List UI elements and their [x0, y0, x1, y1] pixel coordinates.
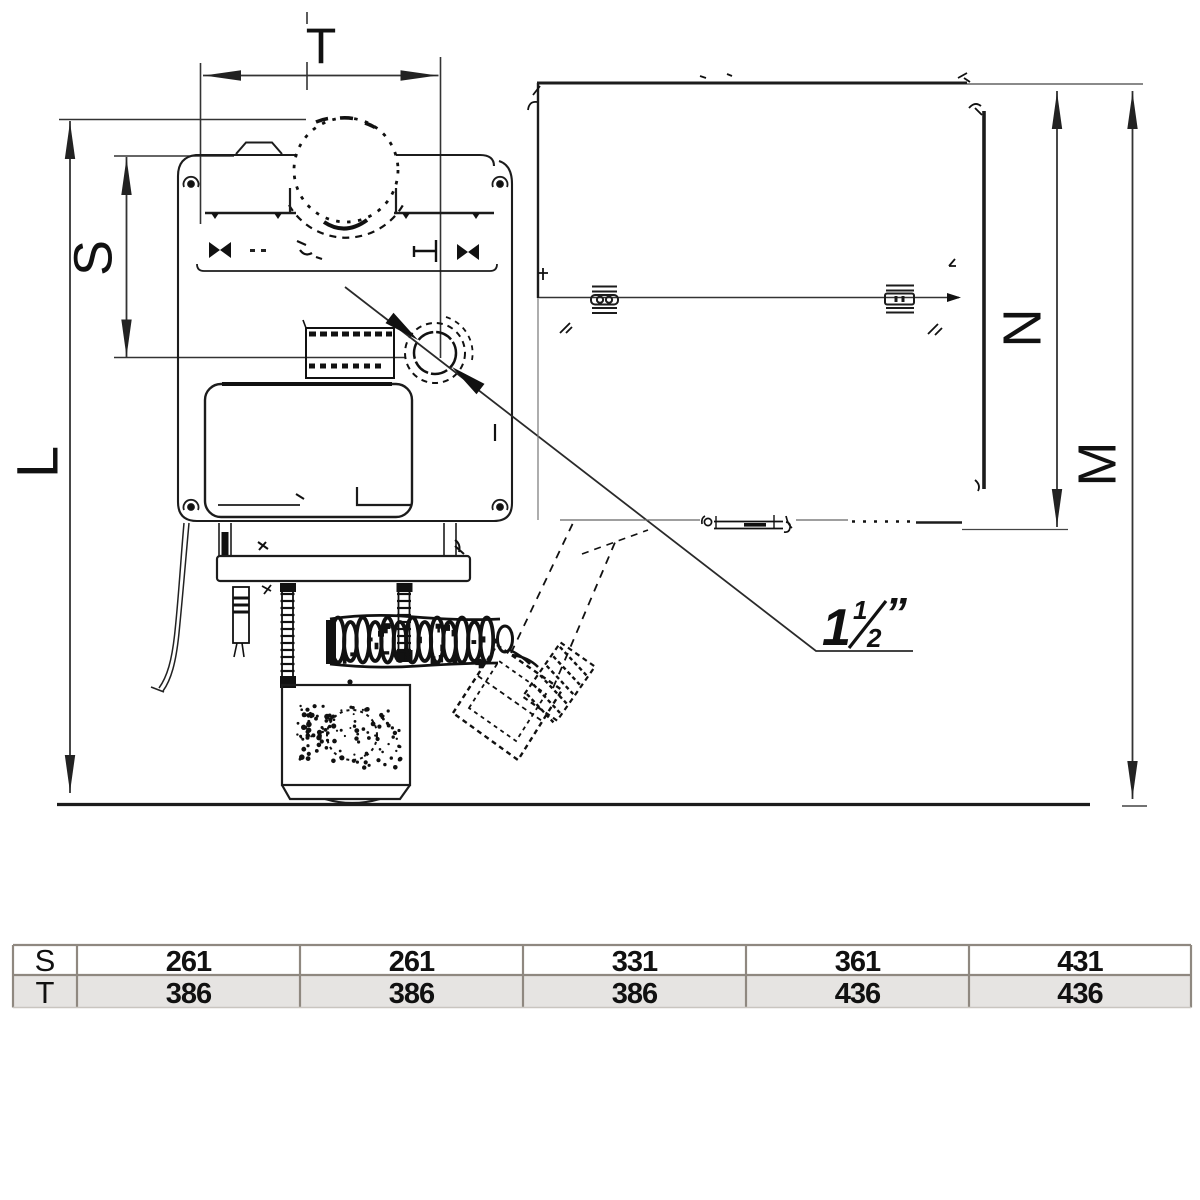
svg-text:361: 361 — [835, 946, 881, 978]
svg-text:331: 331 — [612, 946, 658, 978]
svg-text:261: 261 — [166, 946, 212, 978]
svg-text:T: T — [36, 975, 55, 1010]
svg-text:1: 1 — [853, 595, 867, 625]
svg-text:S: S — [35, 943, 56, 978]
svg-text:386: 386 — [389, 978, 435, 1010]
svg-text:S: S — [63, 240, 123, 276]
svg-text:1: 1 — [822, 599, 851, 657]
svg-text:L: L — [5, 446, 70, 478]
svg-text:M: M — [1067, 442, 1127, 487]
svg-text:436: 436 — [1057, 978, 1103, 1010]
svg-text:”: ” — [885, 589, 907, 638]
svg-text:436: 436 — [835, 978, 881, 1010]
svg-text:2: 2 — [866, 623, 882, 653]
svg-text:431: 431 — [1057, 946, 1103, 978]
svg-text:N: N — [992, 309, 1052, 348]
svg-text:386: 386 — [612, 978, 658, 1010]
svg-text:386: 386 — [166, 978, 212, 1010]
svg-text:T: T — [306, 18, 337, 74]
svg-text:261: 261 — [389, 946, 435, 978]
